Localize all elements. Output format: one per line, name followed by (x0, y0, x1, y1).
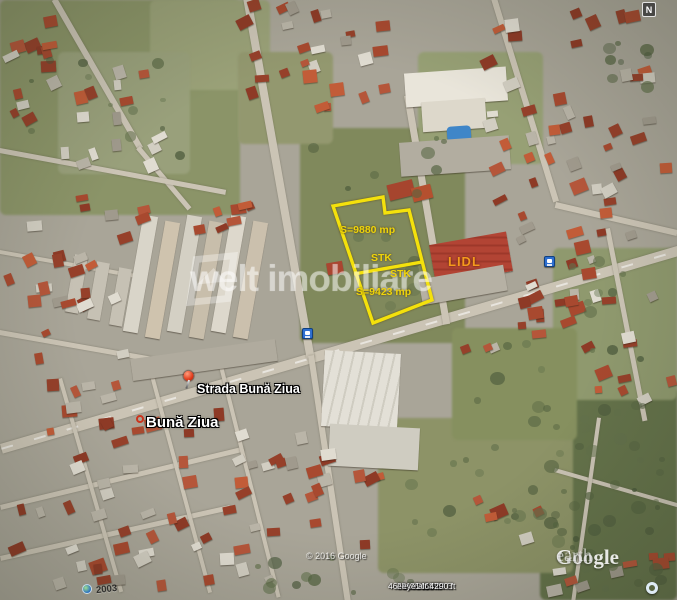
map-vegetation (594, 289, 603, 297)
map-building (281, 21, 293, 30)
map-building (91, 508, 107, 521)
map-building (112, 112, 121, 126)
map-vegetation (160, 126, 165, 131)
map-building (358, 51, 374, 66)
map-building (660, 162, 673, 173)
map-vegetation (370, 171, 379, 179)
map-building (595, 386, 603, 393)
map-vegetation (603, 43, 616, 55)
map-building (199, 532, 212, 544)
map-building (254, 74, 269, 82)
map-building (34, 352, 44, 364)
map-vegetation (308, 143, 319, 153)
parcel-marker-label-top: STK (371, 252, 392, 264)
map-vegetation (641, 81, 654, 93)
map-building (76, 560, 87, 572)
map-vegetation (653, 499, 659, 505)
map-building (285, 0, 299, 15)
map-vegetation (593, 256, 605, 267)
map-building (167, 512, 177, 524)
map-vegetation (268, 557, 282, 570)
map-road (0, 447, 244, 510)
map-vegetation (605, 55, 616, 65)
map-building (79, 203, 90, 212)
map-building (548, 124, 560, 135)
status-eye-altitude: eye alt 4290 ft (402, 581, 455, 591)
map-vegetation (575, 443, 583, 451)
map-vegetation (405, 479, 418, 491)
map-building (105, 210, 119, 221)
map-building (179, 456, 189, 469)
map-building (235, 486, 252, 500)
map-vegetation (598, 404, 611, 416)
map-vegetation (128, 106, 138, 115)
district-marker-icon (136, 415, 144, 423)
map-vegetation (474, 397, 482, 404)
map-apartment-block (87, 261, 110, 320)
map-building (247, 460, 257, 469)
map-building (35, 506, 45, 518)
map-vegetation (659, 457, 665, 462)
map-building (81, 288, 91, 299)
map-vegetation (528, 416, 540, 427)
map-building (310, 9, 321, 23)
map-building (249, 523, 260, 532)
google-earth-logo-word2: earth (556, 545, 592, 566)
map-building (267, 527, 280, 536)
imagery-year-stamp: 2003 (95, 583, 117, 596)
map-building (236, 562, 250, 577)
map-building (295, 431, 308, 445)
map-vegetation (434, 136, 439, 141)
map-vegetation (528, 485, 539, 495)
google-earth-viewport[interactable]: welt imobiliare S=9880 mp STK STK S=9423… (0, 0, 677, 600)
map-building (559, 121, 573, 133)
map-building (156, 580, 166, 592)
map-building (17, 503, 27, 516)
map-vegetation (125, 131, 136, 141)
map-building (302, 70, 317, 84)
map-vegetation (504, 518, 511, 524)
map-building (585, 14, 601, 31)
map-building (553, 92, 567, 106)
map-building (518, 322, 526, 330)
map-vegetation (588, 524, 601, 536)
map-vegetation (569, 263, 576, 269)
map-vegetation (255, 564, 261, 569)
map-vegetation (544, 460, 559, 473)
map-vegetation (656, 469, 664, 476)
street-label[interactable]: Strada Bună Ziua (197, 382, 300, 396)
map-vegetation (573, 536, 579, 542)
map-building (310, 518, 322, 527)
map-building (203, 575, 214, 587)
map-vegetation (634, 579, 643, 587)
map-road (148, 368, 212, 593)
map-vegetation (387, 568, 399, 579)
map-vegetation (292, 581, 301, 589)
map-vegetation (603, 515, 616, 527)
map-vegetation (637, 356, 644, 362)
map-vegetation (351, 590, 356, 595)
map-building (285, 456, 299, 470)
map-building (378, 83, 391, 94)
map-building (353, 469, 366, 482)
map-vegetation (556, 450, 563, 457)
map-vegetation (412, 519, 418, 525)
map-building (340, 35, 351, 45)
map-vegetation (85, 74, 92, 80)
map-building (41, 328, 51, 337)
map-building (146, 530, 159, 545)
map-vegetation (513, 510, 526, 522)
map-building (233, 543, 250, 555)
map-vegetation (632, 488, 637, 493)
map-building (4, 273, 15, 286)
map-vegetation (644, 52, 652, 59)
map-building (77, 112, 90, 123)
street-placemark-pin-icon[interactable] (182, 370, 196, 391)
map-building (100, 392, 116, 403)
map-building (111, 381, 121, 391)
map-building (222, 505, 236, 515)
map-vegetation (503, 342, 512, 350)
map-vegetation (475, 469, 484, 477)
map-vegetation (607, 345, 618, 355)
map-building (47, 378, 59, 391)
map-building (193, 224, 206, 235)
map-building (220, 552, 234, 564)
map-vegetation (579, 423, 591, 434)
map-building (328, 424, 420, 471)
map-road (0, 330, 155, 362)
map-vegetation (28, 128, 35, 134)
map-building (321, 350, 401, 430)
map-building (111, 138, 121, 151)
map-building (94, 564, 104, 575)
copyright-notice: © 2016 Google (306, 551, 367, 561)
map-building (376, 20, 391, 32)
map-building (519, 221, 535, 234)
map-vegetation (421, 147, 435, 159)
map-building (359, 90, 370, 103)
map-building (47, 427, 55, 435)
map-building (492, 194, 507, 206)
map-building (372, 45, 388, 56)
map-building (666, 375, 677, 387)
map-building (518, 211, 528, 222)
map-building (599, 208, 612, 220)
map-vegetation (618, 59, 624, 65)
map-building (113, 541, 130, 555)
bus-stop-icon[interactable] (544, 256, 555, 267)
map-building (570, 39, 582, 48)
map-building (620, 68, 634, 82)
map-building (320, 448, 337, 461)
map-building (61, 147, 70, 159)
map-building (283, 493, 295, 505)
map-building (70, 385, 81, 398)
map-vegetation (584, 299, 592, 306)
map-vegetation (538, 366, 545, 373)
map-building (569, 178, 588, 196)
map-building (608, 124, 623, 139)
map-building (643, 116, 657, 125)
map-building (600, 182, 618, 199)
map-building (62, 500, 74, 515)
map-building (131, 426, 143, 434)
map-building (123, 464, 138, 472)
imagery-globe-icon (82, 584, 92, 594)
map-building (111, 436, 129, 449)
map-building (564, 295, 578, 307)
map-vegetation (610, 480, 620, 489)
map-vegetation (584, 306, 597, 318)
map-building (28, 295, 42, 308)
map-building (359, 540, 369, 549)
bus-stop-icon[interactable] (302, 328, 313, 339)
map-vegetation (637, 457, 644, 463)
map-building (566, 226, 584, 240)
parcel-area-label-top: S=9880 mp (340, 224, 395, 236)
map-vegetation (522, 340, 531, 348)
map-vegetation (586, 445, 599, 457)
map-building (546, 135, 556, 144)
parcel-area-label-bottom: S=9423 mp (356, 286, 411, 298)
map-building (114, 79, 122, 90)
map-building (583, 115, 593, 127)
map-vegetation (631, 501, 646, 514)
map-building (625, 229, 637, 239)
map-building (117, 231, 133, 245)
parcel-marker-label-bottom: STK (390, 268, 411, 280)
map-building (504, 18, 520, 33)
map-vegetation (160, 98, 165, 103)
map-building (516, 235, 526, 245)
map-building (329, 82, 344, 97)
map-vegetation (308, 574, 321, 586)
map-building (182, 475, 198, 489)
streetview-pegman-ring-icon[interactable] (646, 582, 658, 594)
map-building (27, 220, 43, 231)
map-building (118, 526, 131, 538)
lidl-store-label: LIDL (448, 254, 481, 269)
map-building (569, 7, 582, 19)
map-building (81, 381, 95, 390)
map-vegetation (615, 41, 621, 47)
map-building (528, 177, 538, 188)
map-building (630, 132, 647, 146)
map-building (566, 156, 581, 171)
map-vegetation (608, 288, 617, 296)
map-building (52, 577, 66, 591)
map-building (603, 143, 613, 152)
map-vegetation (620, 271, 627, 277)
map-building (624, 10, 641, 24)
map-vegetation (463, 457, 469, 462)
map-vegetation (629, 441, 640, 451)
district-label: Bună Ziua (146, 414, 219, 431)
map-vegetation (585, 492, 594, 500)
map-building (141, 508, 157, 519)
map-field (452, 328, 577, 440)
map-vegetation (152, 58, 164, 69)
compass-north-indicator[interactable]: N (642, 2, 656, 17)
map-vegetation (607, 74, 618, 84)
map-vegetation (645, 527, 654, 536)
map-building (563, 105, 576, 120)
map-building (320, 9, 332, 18)
map-building (66, 401, 82, 414)
